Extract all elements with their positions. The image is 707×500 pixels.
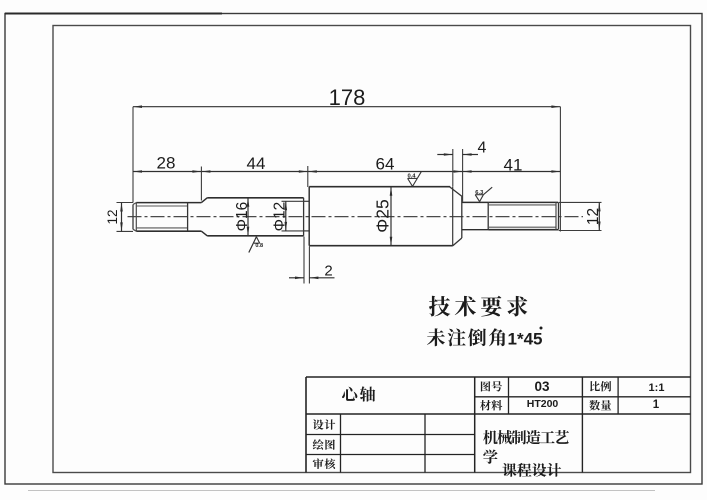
- svg-text:2: 2: [324, 263, 332, 280]
- svg-text:03: 03: [534, 379, 550, 394]
- svg-text:Φ16: Φ16: [234, 202, 251, 232]
- svg-text:12: 12: [105, 209, 120, 224]
- svg-text:64: 64: [376, 155, 395, 174]
- svg-text:Φ12: Φ12: [272, 202, 289, 232]
- svg-text:4: 4: [478, 140, 487, 157]
- svg-text:178: 178: [329, 85, 366, 110]
- svg-text:1:1: 1:1: [649, 382, 665, 394]
- svg-text:41: 41: [504, 156, 523, 175]
- svg-text:1: 1: [653, 399, 660, 411]
- svg-text:1*45: 1*45: [508, 330, 543, 349]
- svg-text:0.8: 0.8: [255, 243, 263, 249]
- svg-text:28: 28: [157, 154, 176, 173]
- svg-text:12: 12: [585, 208, 602, 225]
- svg-text:Φ25: Φ25: [373, 199, 393, 232]
- svg-text:HT200: HT200: [527, 398, 559, 410]
- svg-text:44: 44: [247, 154, 266, 173]
